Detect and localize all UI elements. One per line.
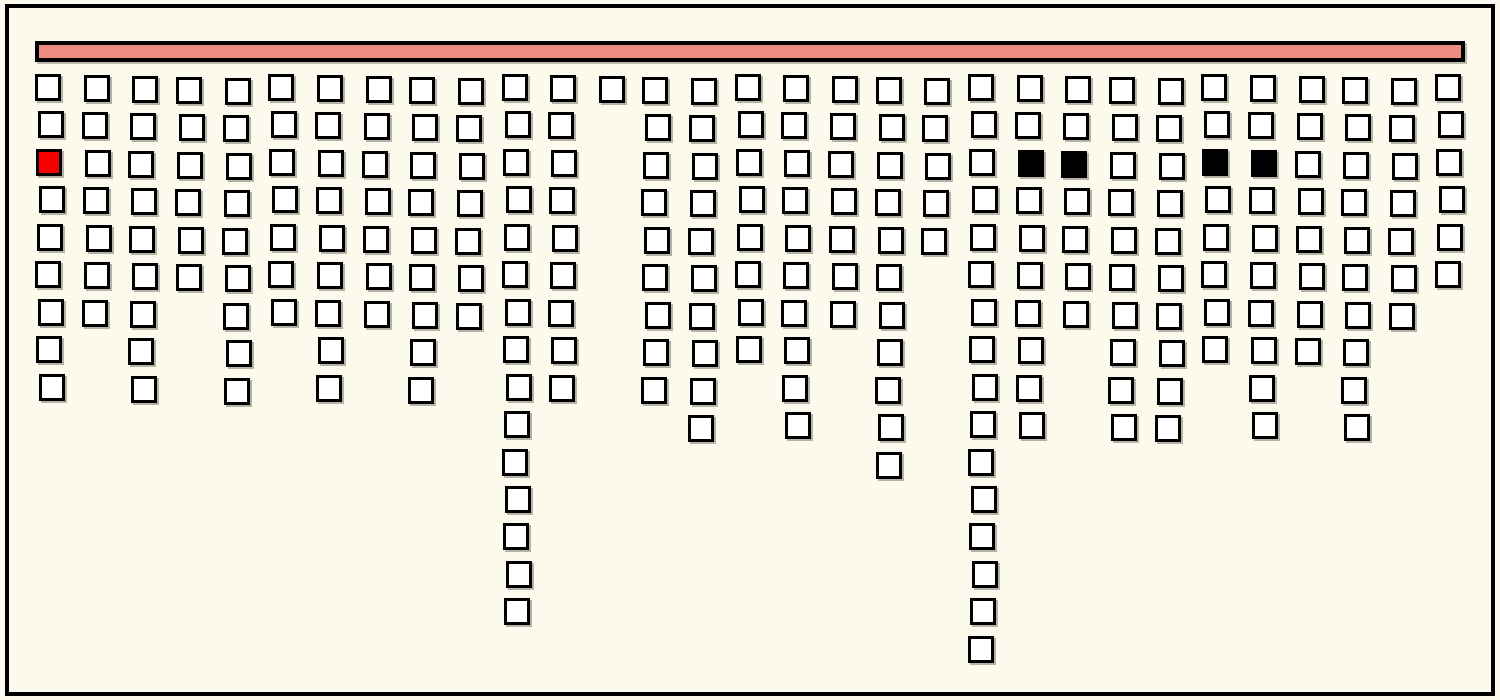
grid-square bbox=[644, 227, 670, 254]
grid-square bbox=[36, 336, 62, 363]
grid-square bbox=[688, 228, 714, 255]
grid-square bbox=[828, 151, 854, 178]
grid-square bbox=[1342, 264, 1368, 291]
grid-square bbox=[691, 78, 717, 105]
grid-square bbox=[1108, 377, 1134, 404]
grid-square bbox=[1158, 265, 1184, 292]
grid-square bbox=[458, 78, 484, 105]
grid-square bbox=[738, 299, 764, 326]
grid-square bbox=[1299, 263, 1325, 290]
grid-square bbox=[971, 299, 997, 326]
grid-square bbox=[550, 75, 576, 102]
grid-square bbox=[412, 114, 438, 141]
grid-square bbox=[1341, 189, 1367, 216]
grid-square bbox=[363, 226, 389, 253]
grid-square bbox=[1155, 228, 1181, 255]
grid-square bbox=[1297, 113, 1323, 140]
grid-square bbox=[1341, 377, 1367, 404]
grid-square bbox=[503, 336, 529, 363]
grid-square bbox=[1344, 414, 1370, 441]
grid-square bbox=[38, 111, 64, 138]
grid-square bbox=[1250, 75, 1276, 102]
grid-square bbox=[1435, 74, 1461, 101]
grid-square bbox=[1345, 114, 1371, 141]
grid-square bbox=[692, 153, 718, 180]
grid-square bbox=[1205, 186, 1231, 213]
grid-square bbox=[458, 265, 484, 292]
grid-square bbox=[1109, 77, 1135, 104]
grid-square bbox=[226, 153, 252, 180]
grid-square bbox=[1156, 303, 1182, 330]
grid-square bbox=[1436, 149, 1462, 176]
grid-square bbox=[1204, 299, 1230, 326]
grid-square bbox=[504, 598, 530, 625]
grid-square bbox=[1158, 78, 1184, 105]
grid-square bbox=[784, 150, 810, 177]
grid-square bbox=[1295, 151, 1321, 178]
grid-square bbox=[1295, 338, 1321, 365]
grid-square bbox=[1018, 337, 1044, 364]
grid-square bbox=[130, 113, 156, 140]
grid-square bbox=[785, 225, 811, 252]
grid-square bbox=[459, 153, 485, 180]
grid-square bbox=[128, 151, 154, 178]
grid-square bbox=[130, 301, 156, 328]
grid-square bbox=[1156, 115, 1182, 142]
grid-square bbox=[690, 190, 716, 217]
grid-square bbox=[128, 338, 154, 365]
grid-square bbox=[1298, 188, 1324, 215]
grid-square bbox=[1299, 76, 1325, 103]
grid-square bbox=[1252, 412, 1278, 439]
grid-square bbox=[503, 149, 529, 176]
grid-square bbox=[925, 153, 951, 180]
grid-square bbox=[781, 112, 807, 139]
grid-square bbox=[177, 152, 203, 179]
grid-square bbox=[829, 226, 855, 253]
grid-square bbox=[1248, 112, 1274, 139]
grid-square bbox=[502, 449, 528, 476]
grid-square bbox=[317, 75, 343, 102]
grid-square bbox=[1109, 264, 1135, 291]
grid-square bbox=[84, 262, 110, 289]
grid-square bbox=[970, 224, 996, 251]
grid-square bbox=[1392, 153, 1418, 180]
grid-square bbox=[1343, 152, 1369, 179]
grid-square bbox=[551, 150, 577, 177]
grid-square bbox=[641, 189, 667, 216]
grid-square bbox=[1388, 228, 1414, 255]
grid-square bbox=[1155, 415, 1181, 442]
grid-square bbox=[879, 114, 905, 141]
grid-square bbox=[82, 300, 108, 327]
grid-square bbox=[739, 186, 765, 213]
grid-square bbox=[456, 303, 482, 330]
grid-square bbox=[412, 302, 438, 329]
grid-square bbox=[1391, 265, 1417, 292]
red-square bbox=[36, 149, 62, 176]
grid-square bbox=[735, 74, 761, 101]
grid-square bbox=[226, 340, 252, 367]
grid-square bbox=[969, 523, 995, 550]
grid-square bbox=[968, 449, 994, 476]
grid-square bbox=[830, 113, 856, 140]
grid-square bbox=[548, 112, 574, 139]
grid-square bbox=[409, 264, 435, 291]
grid-square bbox=[1015, 112, 1041, 139]
grid-square bbox=[178, 227, 204, 254]
grid-square bbox=[1250, 262, 1276, 289]
grid-square bbox=[549, 375, 575, 402]
grid-square bbox=[1389, 303, 1415, 330]
grid-square bbox=[502, 74, 528, 101]
grid-square bbox=[225, 265, 251, 292]
grid-square bbox=[84, 75, 110, 102]
black-square bbox=[1018, 150, 1044, 177]
grid-square bbox=[365, 188, 391, 215]
grid-square bbox=[86, 225, 112, 252]
grid-square bbox=[691, 265, 717, 292]
grid-square bbox=[225, 78, 251, 105]
grid-square bbox=[39, 374, 65, 401]
grid-square bbox=[411, 227, 437, 254]
grid-square bbox=[688, 415, 714, 442]
grid-square bbox=[738, 111, 764, 138]
grid-square bbox=[1252, 225, 1278, 252]
grid-square bbox=[549, 187, 575, 214]
grid-square bbox=[503, 523, 529, 550]
grid-square bbox=[1110, 339, 1136, 366]
grid-square bbox=[1016, 187, 1042, 214]
grid-square bbox=[506, 561, 532, 588]
grid-square bbox=[1203, 224, 1229, 251]
grid-square bbox=[505, 486, 531, 513]
grid-square bbox=[129, 226, 155, 253]
grid-square bbox=[176, 264, 202, 291]
grid-square bbox=[455, 228, 481, 255]
grid-square bbox=[968, 261, 994, 288]
grid-square bbox=[1248, 300, 1274, 327]
grid-square bbox=[548, 300, 574, 327]
grid-square bbox=[971, 486, 997, 513]
grid-square bbox=[1435, 261, 1461, 288]
grid-square bbox=[271, 299, 297, 326]
grid-square bbox=[1015, 300, 1041, 327]
grid-square bbox=[131, 188, 157, 215]
grid-square bbox=[410, 152, 436, 179]
grid-square bbox=[222, 228, 248, 255]
grid-square bbox=[316, 375, 342, 402]
grid-square bbox=[1249, 187, 1275, 214]
grid-square bbox=[456, 115, 482, 142]
grid-square bbox=[879, 302, 905, 329]
grid-square bbox=[877, 152, 903, 179]
grid-square bbox=[409, 77, 435, 104]
grid-square bbox=[875, 377, 901, 404]
grid-square bbox=[1201, 261, 1227, 288]
grid-square bbox=[972, 561, 998, 588]
grid-square bbox=[506, 186, 532, 213]
grid-square bbox=[506, 374, 532, 401]
grid-square bbox=[271, 111, 297, 138]
grid-square bbox=[876, 77, 902, 104]
grid-square bbox=[268, 74, 294, 101]
grid-square bbox=[969, 149, 995, 176]
grid-square bbox=[875, 189, 901, 216]
grid-square bbox=[408, 189, 434, 216]
grid-square bbox=[1017, 262, 1043, 289]
grid-square bbox=[645, 302, 671, 329]
grid-square bbox=[1019, 412, 1045, 439]
grid-square bbox=[85, 150, 111, 177]
grid-square bbox=[1204, 111, 1230, 138]
grid-square bbox=[737, 224, 763, 251]
grid-square bbox=[35, 261, 61, 288]
grid-square bbox=[1342, 77, 1368, 104]
grid-square bbox=[1296, 226, 1322, 253]
grid-square bbox=[224, 190, 250, 217]
grid-square bbox=[1202, 336, 1228, 363]
grid-square bbox=[224, 378, 250, 405]
grid-square bbox=[642, 264, 668, 291]
grid-square bbox=[1343, 339, 1369, 366]
grid-square bbox=[1344, 227, 1370, 254]
grid-square bbox=[876, 264, 902, 291]
grid-square bbox=[82, 112, 108, 139]
grid-square bbox=[39, 186, 65, 213]
figure-canvas bbox=[0, 0, 1500, 700]
grid-square bbox=[132, 76, 158, 103]
squares-grid bbox=[0, 0, 1500, 700]
grid-square bbox=[924, 78, 950, 105]
grid-square bbox=[272, 186, 298, 213]
grid-square bbox=[38, 299, 64, 326]
grid-square bbox=[1159, 340, 1185, 367]
grid-square bbox=[972, 186, 998, 213]
grid-square bbox=[1297, 301, 1323, 328]
grid-square bbox=[1389, 115, 1415, 142]
grid-square bbox=[502, 261, 528, 288]
grid-square bbox=[1390, 190, 1416, 217]
grid-square bbox=[270, 224, 296, 251]
grid-square bbox=[505, 111, 531, 138]
grid-square bbox=[364, 113, 390, 140]
grid-square bbox=[175, 189, 201, 216]
grid-square bbox=[735, 261, 761, 288]
grid-square bbox=[315, 112, 341, 139]
grid-square bbox=[599, 76, 625, 103]
grid-square bbox=[552, 225, 578, 252]
grid-square bbox=[223, 115, 249, 142]
black-square bbox=[1061, 151, 1087, 178]
grid-square bbox=[1063, 113, 1089, 140]
grid-square bbox=[1251, 337, 1277, 364]
grid-square bbox=[131, 376, 157, 403]
grid-square bbox=[1345, 302, 1371, 329]
grid-square bbox=[970, 411, 996, 438]
grid-square bbox=[1111, 414, 1137, 441]
grid-square bbox=[366, 263, 392, 290]
grid-square bbox=[921, 228, 947, 255]
grid-square bbox=[641, 377, 667, 404]
grid-square bbox=[268, 261, 294, 288]
grid-square bbox=[878, 227, 904, 254]
grid-square bbox=[831, 188, 857, 215]
grid-square bbox=[876, 452, 902, 479]
black-square bbox=[1202, 149, 1228, 176]
grid-square bbox=[318, 150, 344, 177]
grid-square bbox=[132, 263, 158, 290]
black-square bbox=[1251, 150, 1277, 177]
grid-square bbox=[971, 111, 997, 138]
grid-square bbox=[1065, 263, 1091, 290]
grid-square bbox=[1019, 225, 1045, 252]
grid-square bbox=[362, 151, 388, 178]
grid-square bbox=[968, 636, 994, 663]
grid-square bbox=[877, 339, 903, 366]
grid-square bbox=[505, 299, 531, 326]
grid-square bbox=[783, 262, 809, 289]
grid-square bbox=[1201, 74, 1227, 101]
grid-square bbox=[832, 263, 858, 290]
grid-square bbox=[736, 336, 762, 363]
grid-square bbox=[832, 76, 858, 103]
grid-square bbox=[319, 225, 345, 252]
grid-square bbox=[970, 598, 996, 625]
grid-square bbox=[645, 114, 671, 141]
grid-square bbox=[1249, 375, 1275, 402]
grid-square bbox=[317, 262, 343, 289]
grid-square bbox=[550, 262, 576, 289]
grid-square bbox=[1112, 302, 1138, 329]
grid-square bbox=[1438, 111, 1464, 138]
grid-square bbox=[1159, 153, 1185, 180]
grid-square bbox=[179, 114, 205, 141]
grid-square bbox=[408, 377, 434, 404]
grid-square bbox=[1437, 224, 1463, 251]
grid-square bbox=[1112, 114, 1138, 141]
grid-square bbox=[643, 152, 669, 179]
grid-square bbox=[1157, 378, 1183, 405]
grid-square bbox=[782, 187, 808, 214]
grid-square bbox=[643, 339, 669, 366]
grid-square bbox=[830, 301, 856, 328]
grid-square bbox=[83, 187, 109, 214]
grid-square bbox=[1062, 226, 1088, 253]
grid-square bbox=[315, 300, 341, 327]
grid-square bbox=[692, 340, 718, 367]
grid-square bbox=[923, 190, 949, 217]
grid-square bbox=[551, 337, 577, 364]
grid-square bbox=[223, 303, 249, 330]
grid-square bbox=[781, 300, 807, 327]
grid-square bbox=[642, 77, 668, 104]
grid-square bbox=[1439, 186, 1465, 213]
grid-square bbox=[1157, 190, 1183, 217]
grid-square bbox=[969, 336, 995, 363]
grid-square bbox=[784, 337, 810, 364]
grid-square bbox=[457, 190, 483, 217]
grid-square bbox=[410, 339, 436, 366]
grid-square bbox=[1063, 301, 1089, 328]
grid-square bbox=[366, 76, 392, 103]
grid-square bbox=[878, 414, 904, 441]
grid-square bbox=[690, 378, 716, 405]
grid-square bbox=[176, 77, 202, 104]
grid-square bbox=[1111, 227, 1137, 254]
grid-square bbox=[1016, 375, 1042, 402]
grid-square bbox=[504, 224, 530, 251]
grid-square bbox=[922, 115, 948, 142]
grid-square bbox=[318, 337, 344, 364]
grid-square bbox=[316, 187, 342, 214]
grid-square bbox=[269, 149, 295, 176]
grid-square bbox=[1065, 76, 1091, 103]
grid-square bbox=[35, 74, 61, 101]
grid-square bbox=[736, 149, 762, 176]
grid-square bbox=[1108, 189, 1134, 216]
grid-square bbox=[972, 374, 998, 401]
grid-square bbox=[1110, 152, 1136, 179]
grid-square bbox=[689, 303, 715, 330]
grid-square bbox=[968, 74, 994, 101]
grid-square bbox=[1391, 78, 1417, 105]
grid-square bbox=[785, 412, 811, 439]
grid-square bbox=[783, 75, 809, 102]
grid-square bbox=[504, 411, 530, 438]
grid-square bbox=[1017, 75, 1043, 102]
grid-square bbox=[37, 224, 63, 251]
grid-square bbox=[1064, 188, 1090, 215]
grid-square bbox=[782, 375, 808, 402]
grid-square bbox=[364, 301, 390, 328]
grid-square bbox=[689, 115, 715, 142]
